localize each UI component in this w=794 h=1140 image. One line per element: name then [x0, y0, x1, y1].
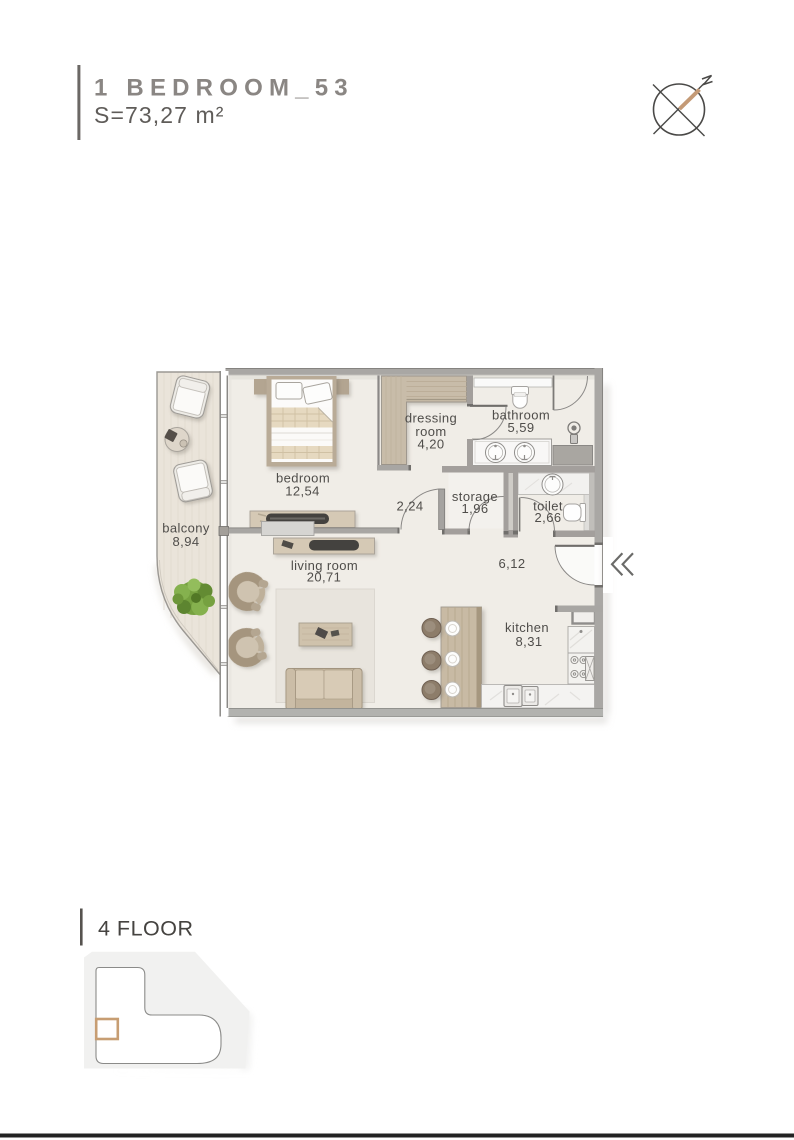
svg-text:4 FLOOR: 4 FLOOR [98, 917, 194, 941]
svg-text:4,20: 4,20 [418, 437, 445, 452]
svg-text:2,66: 2,66 [535, 510, 562, 525]
svg-text:8,94: 8,94 [173, 534, 200, 549]
svg-text:5,59: 5,59 [508, 420, 535, 435]
svg-text:8,31: 8,31 [516, 634, 543, 649]
svg-text:1 BEDROOM_53: 1 BEDROOM_53 [94, 75, 354, 102]
svg-text:6,12: 6,12 [499, 556, 526, 571]
svg-text:kitchen: kitchen [505, 620, 549, 635]
svg-text:2,24: 2,24 [397, 499, 424, 514]
svg-text:1,96: 1,96 [462, 501, 489, 516]
svg-text:S=73,27 m²: S=73,27 m² [94, 102, 225, 128]
svg-text:20,71: 20,71 [307, 570, 342, 585]
svg-text:12,54: 12,54 [285, 484, 320, 499]
